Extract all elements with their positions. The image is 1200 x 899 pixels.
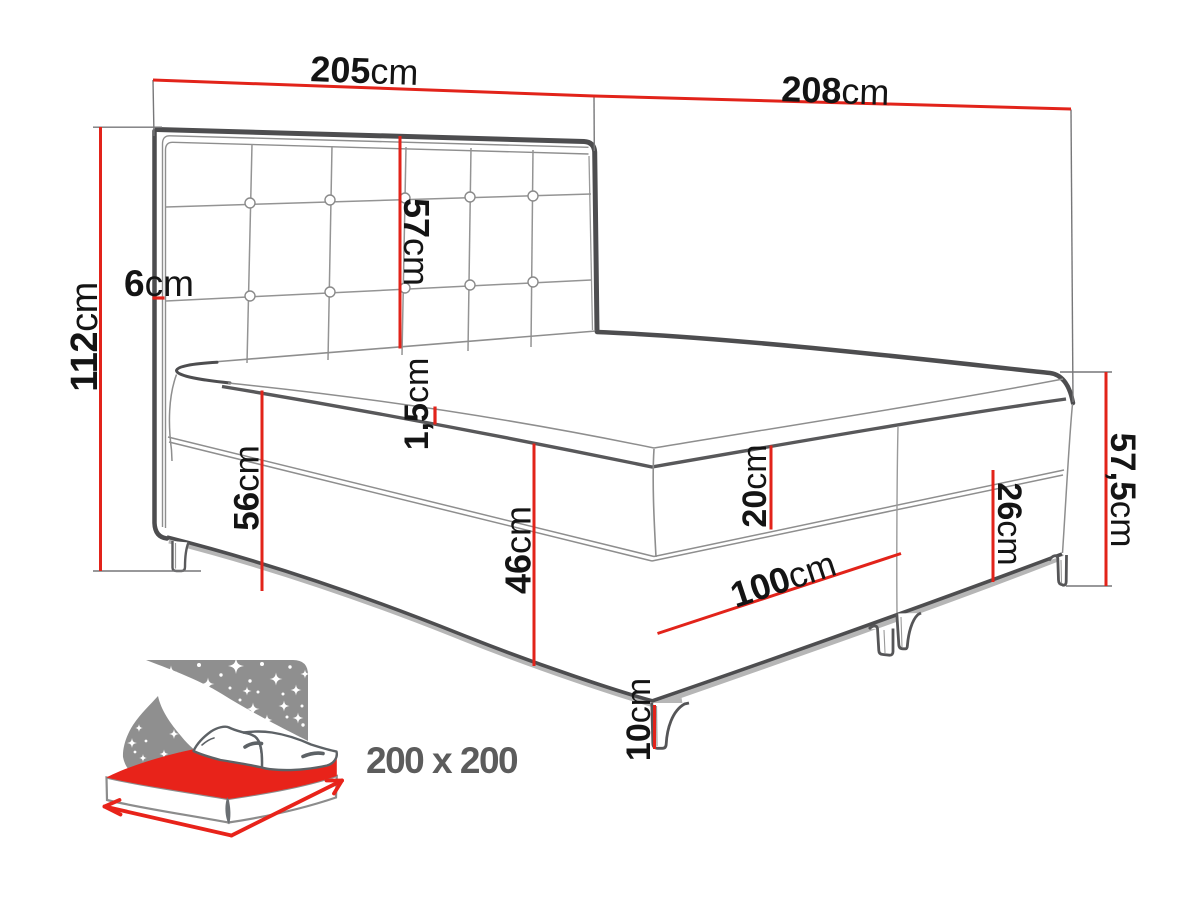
- svg-text:200 x 200: 200 x 200: [366, 740, 518, 781]
- svg-text:10cm: 10cm: [620, 678, 658, 761]
- svg-text:56cm: 56cm: [228, 445, 267, 531]
- svg-text:205cm: 205cm: [310, 48, 419, 93]
- svg-text:57cm: 57cm: [396, 198, 437, 286]
- svg-text:26cm: 26cm: [990, 482, 1028, 565]
- svg-text:46cm: 46cm: [498, 506, 539, 594]
- svg-text:1,5cm: 1,5cm: [398, 358, 436, 451]
- svg-text:208cm: 208cm: [781, 68, 890, 113]
- svg-text:57,5cm: 57,5cm: [1103, 433, 1142, 548]
- svg-text:6cm: 6cm: [124, 263, 194, 304]
- svg-text:112cm: 112cm: [64, 282, 106, 391]
- svg-text:20cm: 20cm: [736, 444, 774, 527]
